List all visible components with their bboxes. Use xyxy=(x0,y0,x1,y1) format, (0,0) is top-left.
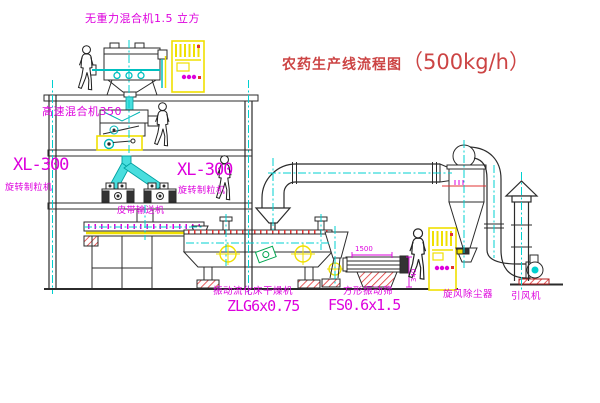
title-chinese: 农药生产线流程图 xyxy=(282,54,402,76)
control-cabinet-2 xyxy=(429,228,456,290)
label-sieve-model: FS0.6x1.5 xyxy=(328,298,400,313)
person-figure xyxy=(78,46,93,90)
cad-flow-diagram: 农药生产线流程图 （500kg/h） 无重力混合机1.5 立方 高速混合机350… xyxy=(0,0,600,403)
dim-sieve-height: 340 xyxy=(411,269,418,282)
control-knobs xyxy=(435,266,449,270)
label-fan: 引风机 xyxy=(511,292,541,302)
indicator-light xyxy=(450,233,453,236)
label-cyclone: 旋风除尘器 xyxy=(443,290,493,300)
exhaust-duct xyxy=(256,162,454,230)
label-dryer-name: 振动流化床干燥机 xyxy=(213,287,293,297)
indicator-light xyxy=(197,45,200,48)
granulator-left xyxy=(102,183,134,203)
dim-sieve-length: 1500 xyxy=(355,246,373,253)
induced-draft-fan xyxy=(519,255,549,284)
label-granulator-right-model: XL-300 xyxy=(177,162,232,179)
label-gravity-free-mixer: 无重力混合机1.5 立方 xyxy=(85,13,200,24)
person-figure xyxy=(155,103,169,146)
label-belt-conveyor: 皮带输送机 xyxy=(117,207,165,216)
label-granulator-left-name: 旋转制粒机 xyxy=(5,184,53,193)
vibrating-sieve xyxy=(343,252,412,287)
label-granulator-left-model: XL-300 xyxy=(13,157,68,174)
label-granulator-right-name: 旋转制粒机 xyxy=(178,187,226,196)
label-high-speed-mixer: 高速混合机350 xyxy=(42,106,122,117)
control-cabinet-1 xyxy=(172,41,204,92)
label-dryer-model: ZLG6x0.75 xyxy=(227,299,299,314)
granulator-right xyxy=(144,183,176,203)
title-capacity: （500kg/h） xyxy=(402,46,530,76)
page-title: 农药生产线流程图 （500kg/h） xyxy=(282,46,530,76)
control-knobs xyxy=(182,75,196,79)
fan-motor xyxy=(532,267,539,274)
fluid-bed-dryer xyxy=(184,217,332,288)
